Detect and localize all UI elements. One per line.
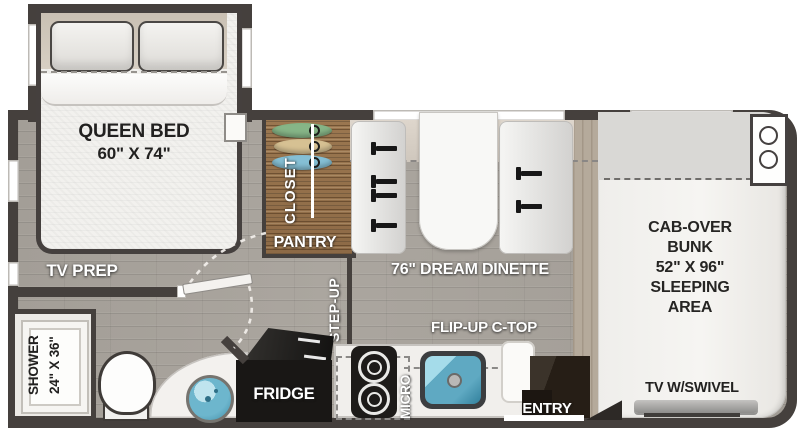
rv-floorplan: QUEEN BED 60" X 74" TV PREP SHOWER 24" X… [0,0,800,430]
corner-wall-stub [224,339,246,361]
door-swing-arc [234,286,252,348]
door-swing-overlay [0,0,800,430]
